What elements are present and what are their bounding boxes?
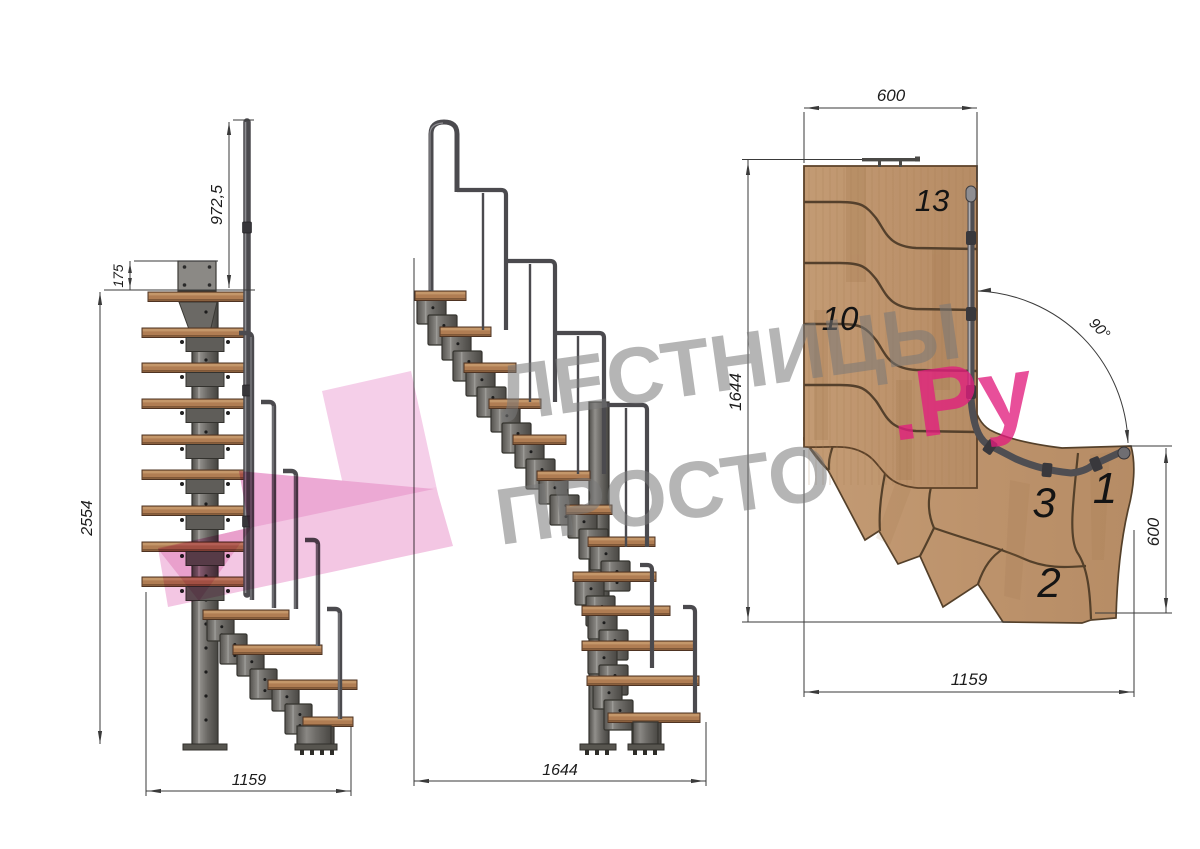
svg-text:972,5: 972,5 bbox=[209, 185, 226, 225]
svg-text:600: 600 bbox=[877, 86, 906, 105]
svg-text:3: 3 bbox=[1032, 479, 1055, 526]
svg-text:1159: 1159 bbox=[232, 772, 267, 789]
svg-text:2554: 2554 bbox=[79, 500, 96, 537]
svg-text:1644: 1644 bbox=[542, 762, 578, 779]
svg-text:600: 600 bbox=[1144, 517, 1163, 546]
svg-text:1159: 1159 bbox=[951, 670, 988, 689]
svg-text:13: 13 bbox=[915, 183, 949, 218]
svg-text:.Ру: .Ру bbox=[882, 336, 1040, 462]
svg-text:175: 175 bbox=[110, 264, 126, 288]
svg-text:2: 2 bbox=[1036, 559, 1060, 606]
